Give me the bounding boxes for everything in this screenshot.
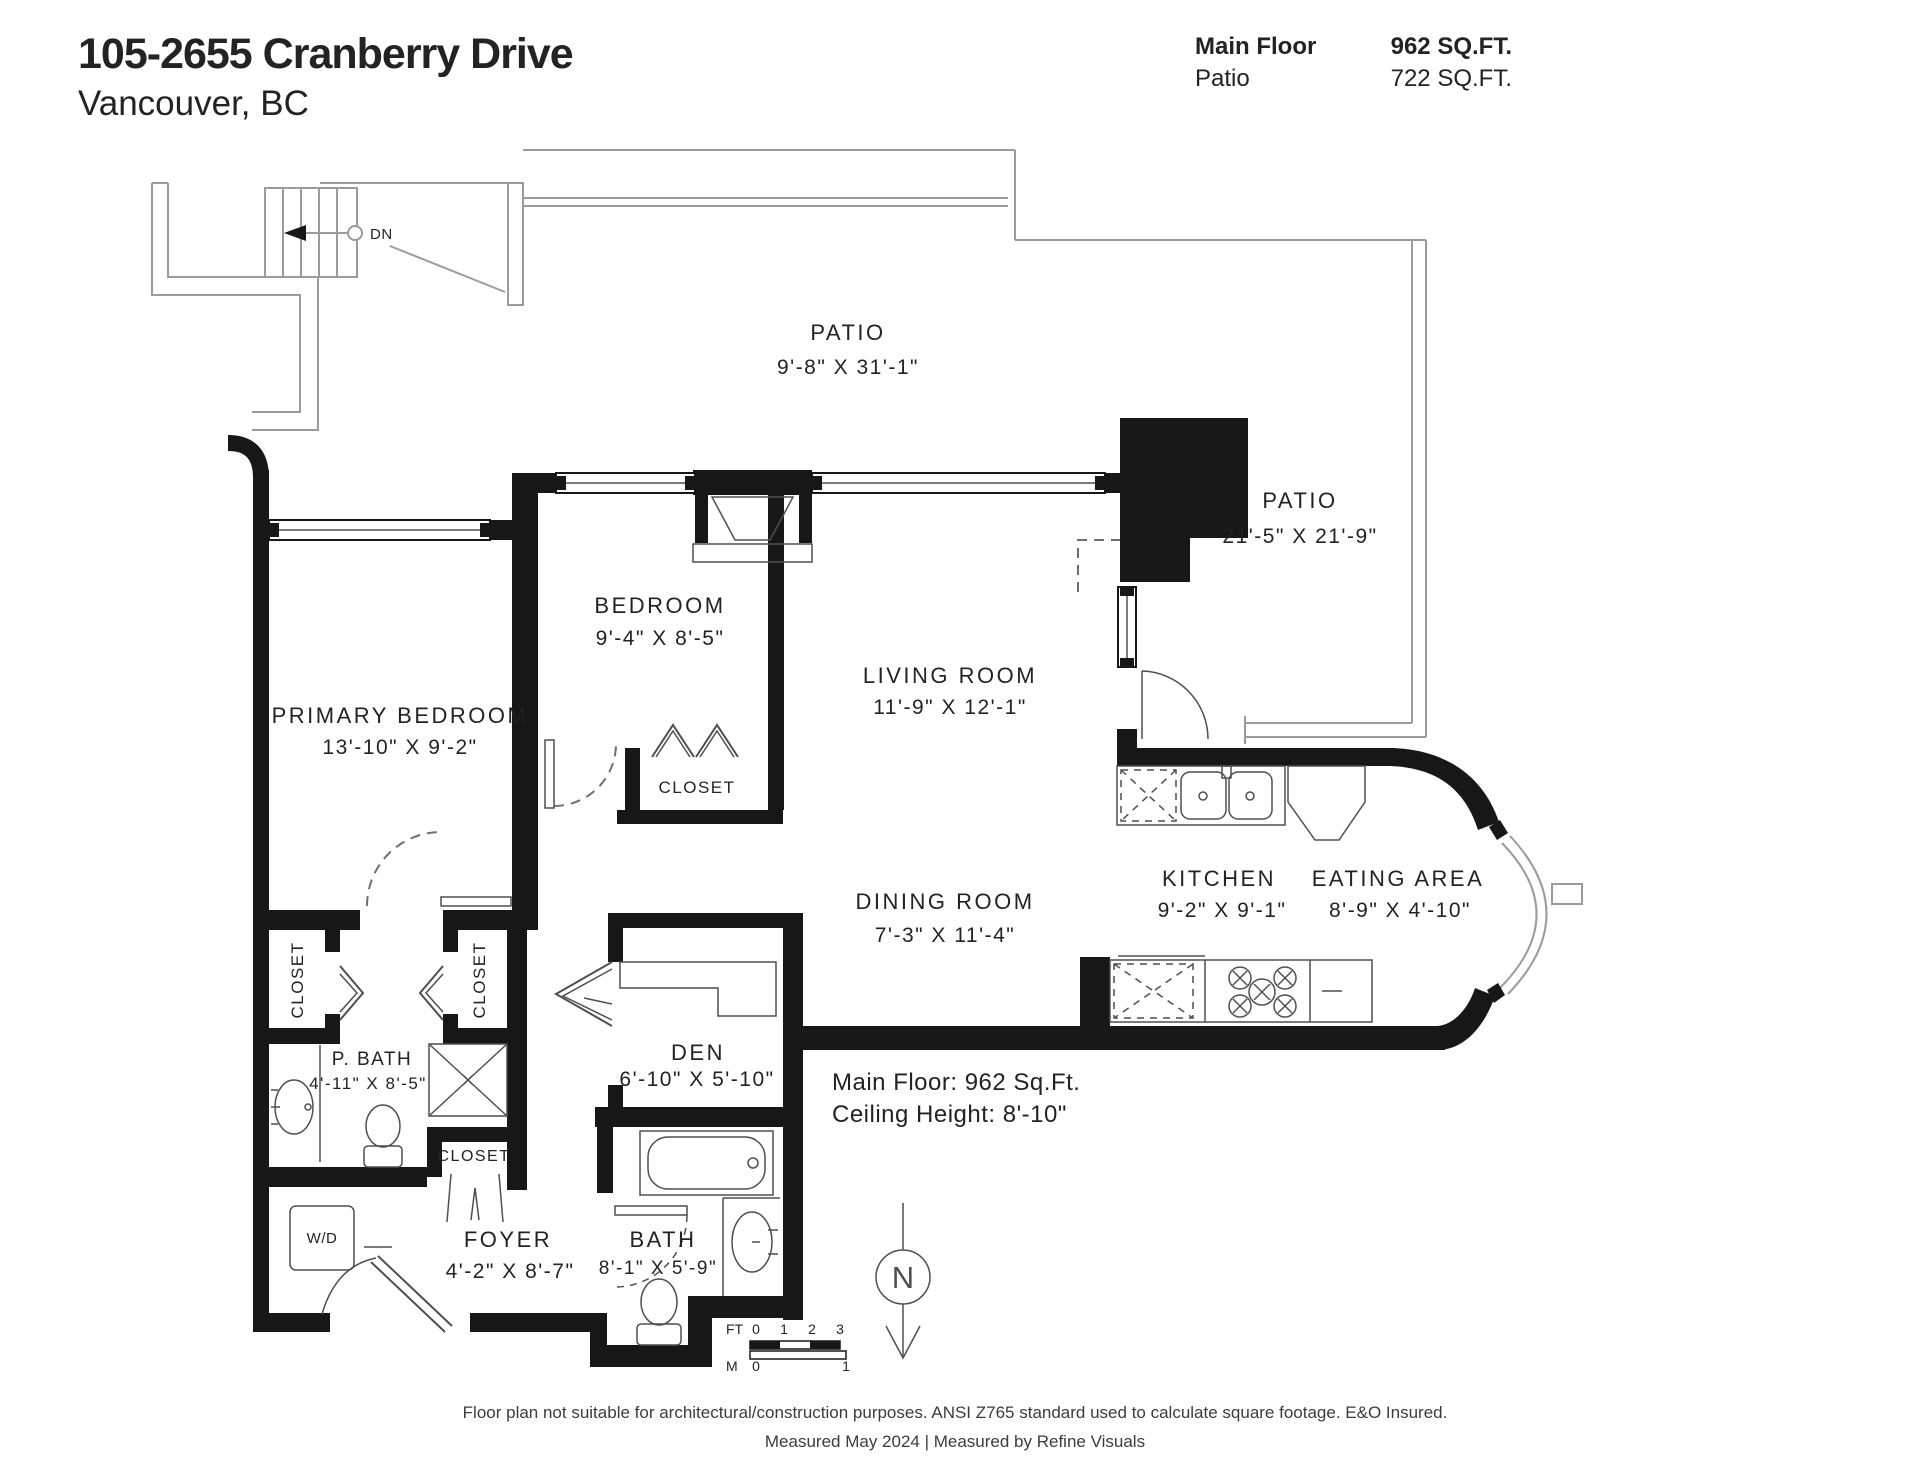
footer: Floor plan not suitable for architectura… (463, 1403, 1448, 1451)
label-dining-room: DINING ROOM (855, 889, 1034, 914)
overhead-dashed-line (1078, 540, 1120, 592)
door-leaf-primary (441, 897, 511, 906)
dims-eating-area: 8'-9" X 4'-10" (1329, 899, 1471, 922)
bifold-closet-right (420, 966, 443, 1020)
north-arrow: N (876, 1203, 930, 1358)
stairs: DN (265, 183, 523, 305)
dims-kitchen: 9'-2" X 9'-1" (1158, 899, 1287, 922)
footer-credit: Measured May 2024 | Measured by Refine V… (765, 1432, 1145, 1451)
label-pbath: P. BATH (332, 1049, 413, 1070)
door-swing-primary (367, 832, 441, 906)
door-leaf-bedroom (545, 740, 554, 808)
bath-toilet-tank (637, 1324, 681, 1345)
corner-cabinet (1288, 766, 1365, 840)
door-leaf-entry (371, 1256, 452, 1332)
pbath-toilet-bowl (366, 1105, 400, 1147)
area-label-main-floor: Main Floor (1195, 33, 1316, 60)
stove (1229, 967, 1296, 1017)
door-swing-entry (322, 1258, 376, 1314)
sink-right (1229, 772, 1272, 819)
den-desk (620, 962, 776, 1016)
dims-den: 6'-10" X 5'-10" (619, 1068, 774, 1091)
label-foyer: FOYER (464, 1227, 552, 1252)
scale-m-0: 0 (752, 1358, 760, 1374)
page-title: 105-2655 Cranberry Drive (78, 30, 573, 78)
scale-ft-2: 2 (808, 1321, 816, 1337)
bifold-closet-left (340, 966, 363, 1020)
dims-pbath: 4'-11" X 8'-5" (309, 1074, 427, 1093)
label-closet-right: CLOSET (470, 941, 489, 1018)
label-bedroom-closet: CLOSET (658, 778, 735, 797)
scale-ft-0: 0 (752, 1321, 760, 1337)
dims-primary-bedroom: 13'-10" X 9'-2" (322, 736, 477, 759)
bifold-bedroom-closet (652, 725, 738, 757)
bath-toilet-bowl (641, 1279, 677, 1325)
note-main-floor: Main Floor: 962 Sq.Ft. (832, 1069, 1080, 1096)
label-hall-closet: CLOSET (437, 1148, 510, 1165)
footer-disclaimer: Floor plan not suitable for architectura… (463, 1403, 1448, 1422)
floor-notes: Main Floor: 962 Sq.Ft. Ceiling Height: 8… (832, 1069, 1080, 1128)
scale-m-1: 1 (842, 1358, 850, 1374)
area-summary: Main Floor 962 SQ.FT. Patio 722 SQ.FT. (1195, 33, 1512, 92)
stairs-dn-label: DN (370, 226, 393, 243)
scale-ft-1: 1 (780, 1321, 788, 1337)
dims-bath: 8'-1" X 5'-9" (599, 1258, 717, 1279)
label-primary-bedroom: PRIMARY BEDROOM (272, 703, 529, 728)
area-label-patio: Patio (1195, 65, 1250, 92)
label-washer-dryer: W/D (307, 1230, 338, 1247)
area-value-main-floor: 962 SQ.FT. (1391, 33, 1512, 60)
floorplan-canvas: 105-2655 Cranberry Drive Vancouver, BC M… (0, 0, 1920, 1483)
pbath-sink (275, 1080, 313, 1134)
door-leaf-bath (615, 1206, 687, 1215)
north-letter: N (892, 1260, 914, 1295)
dishwasher (1121, 770, 1176, 821)
dims-patio-right: 21'-5" X 21'-9" (1222, 525, 1377, 548)
dims-patio-top: 9'-8" X 31'-1" (777, 356, 919, 379)
dims-dining-room: 7'-3" X 11'-4" (875, 924, 1015, 947)
label-closet-left: CLOSET (288, 941, 307, 1018)
label-eating-area: EATING AREA (1312, 866, 1485, 891)
scale-ft-label: FT (726, 1321, 744, 1337)
pbath-toilet-tank (364, 1146, 402, 1167)
sink-left (1181, 772, 1226, 819)
doors-hall-closet (447, 1174, 503, 1222)
label-kitchen: KITCHEN (1162, 866, 1276, 891)
fixtures (271, 766, 1372, 1345)
page-subtitle: Vancouver, BC (78, 84, 309, 123)
label-bedroom: BEDROOM (594, 593, 725, 618)
scale-ft-3: 3 (836, 1321, 844, 1337)
label-living-room: LIVING ROOM (863, 663, 1037, 688)
floorplan-page: 105-2655 Cranberry Drive Vancouver, BC M… (0, 0, 1920, 1483)
shower (429, 1044, 507, 1116)
dims-bedroom: 9'-4" X 8'-5" (596, 627, 725, 650)
door-swing-bedroom (554, 744, 616, 806)
dims-foyer: 4'-2" X 8'-7" (446, 1260, 575, 1283)
kitchen-counter-top (1117, 766, 1285, 825)
area-value-patio: 722 SQ.FT. (1391, 65, 1512, 92)
dims-living-room: 11'-9" X 12'-1" (873, 696, 1027, 719)
label-bath: BATH (629, 1227, 696, 1252)
note-ceiling-height: Ceiling Height: 8'-10" (832, 1101, 1067, 1128)
door-swing-patio (1142, 671, 1208, 739)
fireplace (693, 497, 812, 562)
label-patio-right: PATIO (1262, 488, 1337, 513)
bathtub (640, 1131, 773, 1195)
scale-m-label: M (726, 1358, 738, 1374)
label-den: DEN (671, 1040, 725, 1065)
label-patio-top: PATIO (810, 320, 885, 345)
scale-bar: FT 0 1 2 3 M 0 1 (726, 1321, 850, 1374)
